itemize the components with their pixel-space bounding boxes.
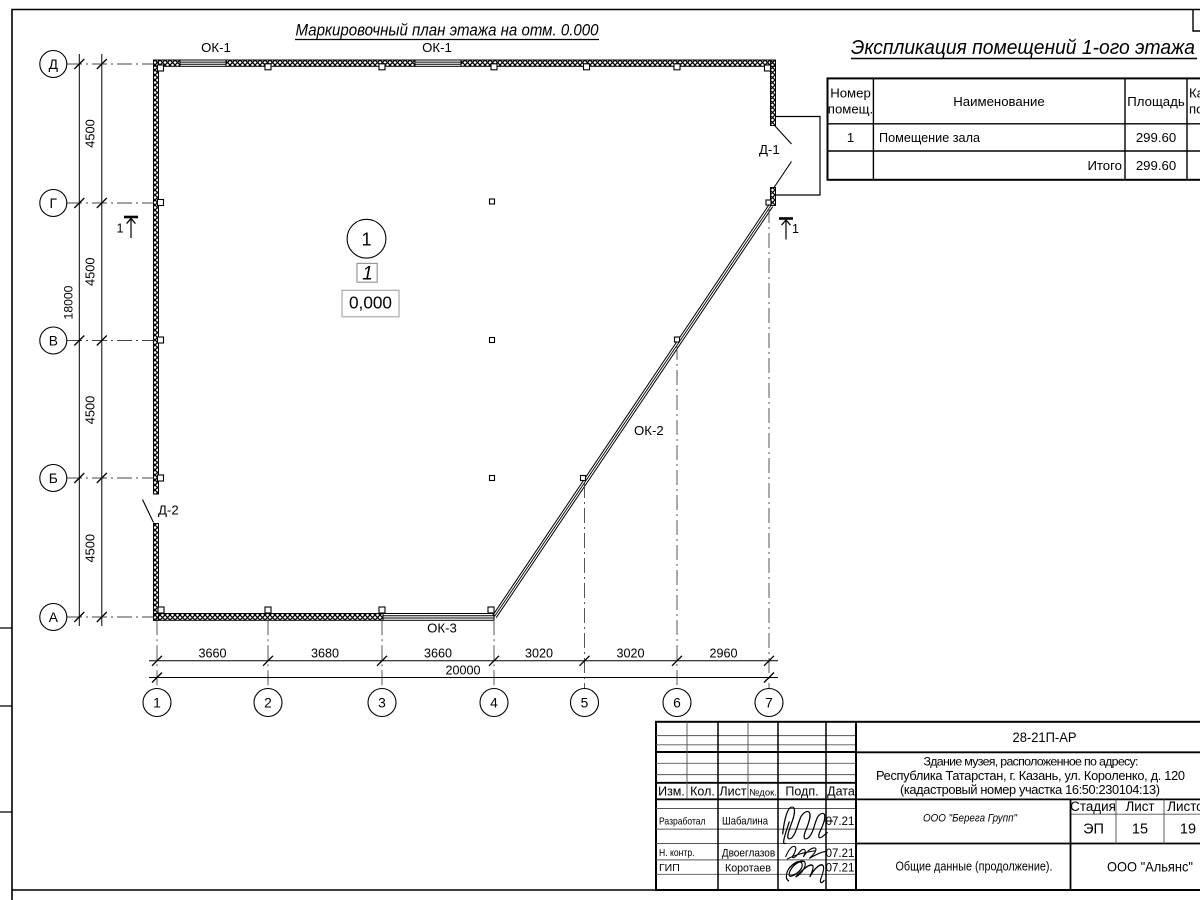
svg-text:4500: 4500 (83, 258, 98, 286)
svg-text:Итого: Итого (1087, 158, 1122, 173)
svg-text:15: 15 (1132, 822, 1148, 838)
svg-text:ООО "Берега Групп": ООО "Берега Групп" (923, 813, 1018, 825)
svg-text:1: 1 (847, 130, 854, 145)
svg-text:Дата: Дата (827, 785, 855, 799)
svg-text:Подп.: Подп. (785, 785, 818, 799)
svg-text:7: 7 (765, 696, 773, 711)
svg-text:1: 1 (116, 222, 123, 236)
svg-text:Разработал: Разработал (659, 816, 706, 828)
svg-text:помещ.: помещ. (828, 102, 873, 117)
svg-text:Кол.: Кол. (690, 785, 715, 799)
svg-text:Д: Д (49, 57, 59, 72)
svg-text:Листов: Листов (1167, 799, 1200, 814)
svg-text:4500: 4500 (83, 119, 98, 147)
svg-text:4500: 4500 (83, 396, 98, 424)
svg-text:19: 19 (1180, 822, 1196, 838)
svg-text:1: 1 (362, 264, 373, 285)
svg-text:Кат.: Кат. (1189, 86, 1200, 101)
svg-text:3660: 3660 (424, 647, 452, 661)
svg-text:ОК-2: ОК-2 (634, 423, 664, 438)
svg-text:Помещение зала: Помещение зала (879, 130, 981, 145)
svg-text:Н. контр.: Н. контр. (659, 847, 695, 859)
svg-text:Общие данные (продолжение).: Общие данные (продолжение). (896, 859, 1053, 874)
svg-text:5: 5 (581, 696, 589, 711)
svg-text:1: 1 (153, 696, 161, 711)
svg-text:Лист: Лист (719, 785, 746, 799)
svg-text:07.21: 07.21 (826, 816, 855, 828)
svg-text:3680: 3680 (311, 647, 339, 661)
svg-text:Маркировочный план этажа на от: Маркировочный план этажа на отм. 0.000 (296, 21, 600, 40)
svg-text:ОК-3: ОК-3 (427, 621, 457, 636)
svg-text:1: 1 (792, 222, 799, 236)
svg-text:2: 2 (264, 696, 272, 711)
svg-text:Изм.: Изм. (658, 785, 685, 799)
svg-text:Г: Г (50, 196, 58, 211)
svg-text:ОК-1: ОК-1 (422, 40, 452, 55)
svg-text:20000: 20000 (445, 664, 480, 678)
svg-text:В: В (49, 334, 58, 349)
svg-text:А: А (49, 610, 59, 625)
svg-text:299.60: 299.60 (1136, 158, 1176, 173)
svg-text:Д-1: Д-1 (759, 142, 780, 157)
svg-text:07.21: 07.21 (826, 848, 855, 860)
svg-text:2960: 2960 (709, 647, 737, 661)
svg-text:ООО "Альянс": ООО "Альянс" (1107, 859, 1193, 875)
svg-text:Наименование: Наименование (953, 94, 1044, 109)
svg-text:18000: 18000 (62, 285, 76, 319)
svg-text:6: 6 (673, 696, 681, 711)
svg-text:Республика Татарстан, г. Казан: Республика Татарстан, г. Казань, ул. Кор… (876, 768, 1185, 783)
svg-text:ЭП: ЭП (1083, 822, 1104, 838)
svg-text:Стадия: Стадия (1070, 799, 1116, 814)
svg-text:Коротаев: Коротаев (725, 863, 771, 875)
svg-text:4500: 4500 (83, 534, 98, 562)
svg-text:(кадастровый номер участка 16:: (кадастровый номер участка 16:50:230104:… (900, 782, 1160, 797)
svg-text:Здание музея, расположенное по: Здание музея, расположенное по адресу: (924, 754, 1139, 768)
svg-text:07.21: 07.21 (826, 863, 855, 875)
svg-text:299.60: 299.60 (1136, 130, 1176, 145)
svg-text:№док.: №док. (749, 788, 777, 799)
svg-text:3020: 3020 (616, 647, 644, 661)
svg-text:0,000: 0,000 (349, 293, 392, 313)
svg-text:Б: Б (49, 471, 58, 486)
svg-text:ОК-1: ОК-1 (201, 40, 231, 55)
svg-text:Д-2: Д-2 (158, 503, 179, 518)
svg-text:пом: пом (1189, 102, 1200, 117)
svg-text:1: 1 (361, 229, 371, 249)
svg-text:4: 4 (490, 696, 498, 711)
svg-text:Номер: Номер (830, 86, 871, 101)
svg-text:3660: 3660 (198, 647, 226, 661)
svg-text:ГИП: ГИП (659, 862, 680, 874)
svg-text:3: 3 (378, 696, 386, 711)
svg-text:Экспликация помещений 1-ого эт: Экспликация помещений 1-ого этажа (851, 36, 1195, 59)
svg-text:Лист: Лист (1125, 799, 1154, 814)
svg-text:28-21П-АР: 28-21П-АР (1013, 730, 1077, 745)
svg-text:Двоеглазов: Двоеглазов (722, 848, 776, 860)
svg-text:3020: 3020 (525, 647, 553, 661)
svg-text:Шабалина: Шабалина (722, 816, 769, 828)
svg-text:Площадь: Площадь (1127, 94, 1185, 109)
